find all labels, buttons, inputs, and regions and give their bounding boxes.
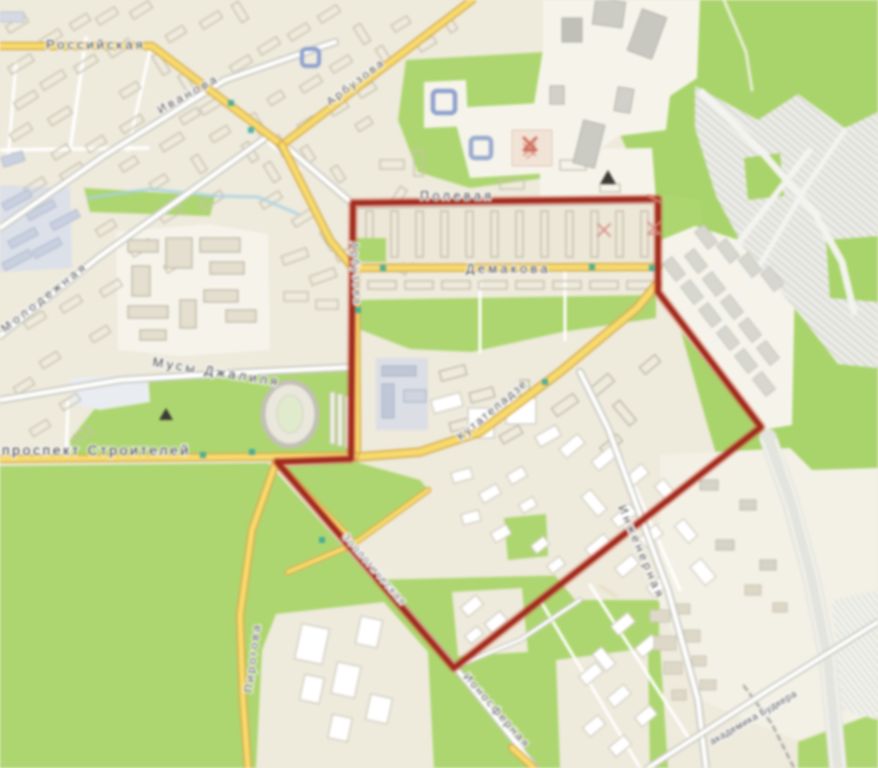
svg-text:Российская: Российская: [46, 37, 146, 52]
svg-text:проспект Строителей: проспект Строителей: [2, 442, 191, 458]
svg-text:Полевая: Полевая: [420, 189, 495, 203]
svg-text:Демакова: Демакова: [466, 262, 551, 276]
